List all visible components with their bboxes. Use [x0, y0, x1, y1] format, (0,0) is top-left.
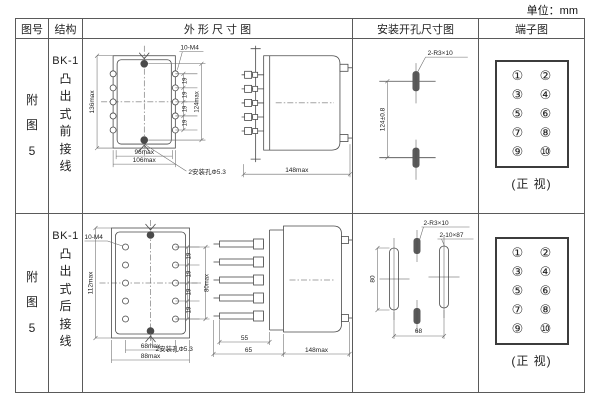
terminal-caption: (正 视): [511, 175, 551, 192]
terminal-7: ⑦: [512, 302, 524, 318]
dim-span-label: 124max: [194, 91, 200, 112]
figure-no-text: 附图5: [25, 265, 40, 341]
structure-row2: BK-1 凸出式后接线: [49, 214, 83, 392]
dim-pitch-label-1: 19: [182, 77, 188, 84]
mounting-hole-note: 2安装孔Φ5.3: [188, 167, 226, 176]
terminal-8: ⑧: [540, 302, 552, 318]
dim-offset-label: 65: [245, 347, 253, 354]
slot-note-label: 2-R3×10: [428, 50, 454, 57]
outline-cell-row1: 136max 19 19 19 19 124max 10-M4 96max 10…: [83, 39, 353, 214]
terminal-cell-row1: ① ② ③ ④ ⑤ ⑥ ⑦ ⑧ ⑨ ⑩ (正 视): [479, 39, 584, 214]
terminal-2: ②: [540, 68, 552, 84]
terminal-3: ③: [512, 87, 524, 103]
dim-depth-label: 148max: [285, 167, 309, 174]
thread-label: 10-M4: [85, 234, 104, 241]
dim-pitch-label-3: 19: [187, 288, 193, 295]
model-label: BK-1: [52, 230, 78, 242]
dim-span-label: 80max: [205, 274, 211, 292]
mounting-holes: [380, 230, 460, 332]
terminal-diagram-box: ① ② ③ ④ ⑤ ⑥ ⑦ ⑧ ⑨ ⑩: [495, 60, 569, 168]
side-view-rear-studs: [214, 237, 353, 322]
dim-pitch-label-2: 19: [187, 270, 193, 277]
model-label: BK-1: [52, 55, 78, 67]
dim-width-outer-label: 106max: [133, 157, 157, 164]
side-view-body: [270, 226, 342, 332]
outline-drawing-rear-wiring: 112max 10-M4 19 19 19 19 80max 68max 88m…: [83, 214, 352, 392]
dim-span-h-label: 68: [415, 328, 423, 335]
mounting-hole-note: 2安装孔Φ5.3: [156, 344, 194, 353]
header-cell-mounting: 安装开孔尺寸图: [353, 19, 479, 39]
terminal-10: ⑩: [540, 321, 552, 337]
dim-height-label: 112max: [88, 271, 95, 294]
side-view-body: [251, 46, 340, 162]
terminal-1: ①: [512, 68, 524, 84]
dim-stud-label: 55: [241, 335, 249, 342]
mounting-dimension-lines: [385, 57, 467, 160]
side-view-dimension-lines: [212, 320, 352, 357]
terminal-5: ⑤: [512, 106, 524, 122]
terminal-7: ⑦: [512, 125, 524, 141]
terminal-8: ⑧: [540, 125, 552, 141]
header-cell-terminal: 端子图: [479, 19, 584, 39]
dim-pitch-label-4: 19: [187, 306, 193, 313]
spec-table: 图号 结构 外 形 尺 寸 图 安装开孔尺寸图 端子图 附图5 BK-1 凸出式…: [15, 18, 585, 393]
figure-no-row1: 附图5: [16, 39, 49, 214]
dim-span-v-label: 80: [370, 275, 377, 283]
mounting-cell-row1: 124±0.8 2-R3×10: [353, 39, 479, 214]
unit-label: 单位：mm: [527, 2, 578, 18]
structure-desc: 凸出式前接线: [59, 71, 72, 175]
terminal-3: ③: [512, 264, 524, 280]
figure-no-text: 附图5: [25, 88, 40, 164]
header-cell-outline: 外 形 尺 寸 图: [83, 19, 353, 39]
header-cell-figure: 图号: [16, 19, 49, 39]
structure-desc: 凸出式后接线: [59, 246, 72, 350]
mounting-drawing-front-wiring: 124±0.8 2-R3×10: [353, 39, 478, 213]
dim-pitch-label-2: 19: [182, 91, 188, 98]
terminal-1: ①: [512, 245, 524, 261]
terminal-4: ④: [540, 264, 552, 280]
terminal-cell-row2: ① ② ③ ④ ⑤ ⑥ ⑦ ⑧ ⑨ ⑩ (正 视): [479, 214, 584, 392]
outline-cell-row2: 112max 10-M4 19 19 19 19 80max 68max 88m…: [83, 214, 353, 392]
dim-height-label: 136max: [89, 90, 96, 114]
outline-drawing-front-wiring: 136max 19 19 19 19 124max 10-M4 96max 10…: [83, 39, 352, 213]
dim-pitch-label-3: 19: [182, 105, 188, 112]
slot-note-label: 2-R3×10: [424, 220, 449, 227]
dim-depth-label: 148max: [305, 347, 329, 354]
terminal-5: ⑤: [512, 283, 524, 299]
header-cell-structure: 结构: [49, 19, 83, 39]
figure-no-row2: 附图5: [16, 214, 49, 392]
slot-long-label: 2-10×87: [440, 232, 464, 239]
structure-row1: BK-1 凸出式前接线: [49, 39, 83, 214]
terminal-caption: (正 视): [511, 352, 551, 369]
terminal-4: ④: [540, 87, 552, 103]
terminal-2: ②: [540, 245, 552, 261]
terminal-9: ⑨: [512, 321, 524, 337]
mounting-cell-row2: 2-R3×10 2-10×87 80 68: [353, 214, 479, 392]
terminal-6: ⑥: [540, 106, 552, 122]
dim-pitch-label-4: 19: [182, 119, 188, 126]
dim-hole-span-label: 124±0.8: [379, 107, 386, 131]
terminal-10: ⑩: [540, 144, 552, 160]
terminal-6: ⑥: [540, 283, 552, 299]
dim-width-inner-label: 96max: [134, 149, 154, 156]
mounting-dimension-lines: [376, 227, 474, 339]
dim-pitch-label-1: 19: [187, 252, 193, 259]
terminal-diagram-box: ① ② ③ ④ ⑤ ⑥ ⑦ ⑧ ⑨ ⑩: [495, 237, 569, 345]
mounting-drawing-rear-wiring: 2-R3×10 2-10×87 80 68: [353, 214, 478, 392]
dim-width-outer-label: 88max: [141, 353, 161, 360]
terminal-9: ⑨: [512, 144, 524, 160]
thread-label: 10-M4: [180, 45, 199, 52]
